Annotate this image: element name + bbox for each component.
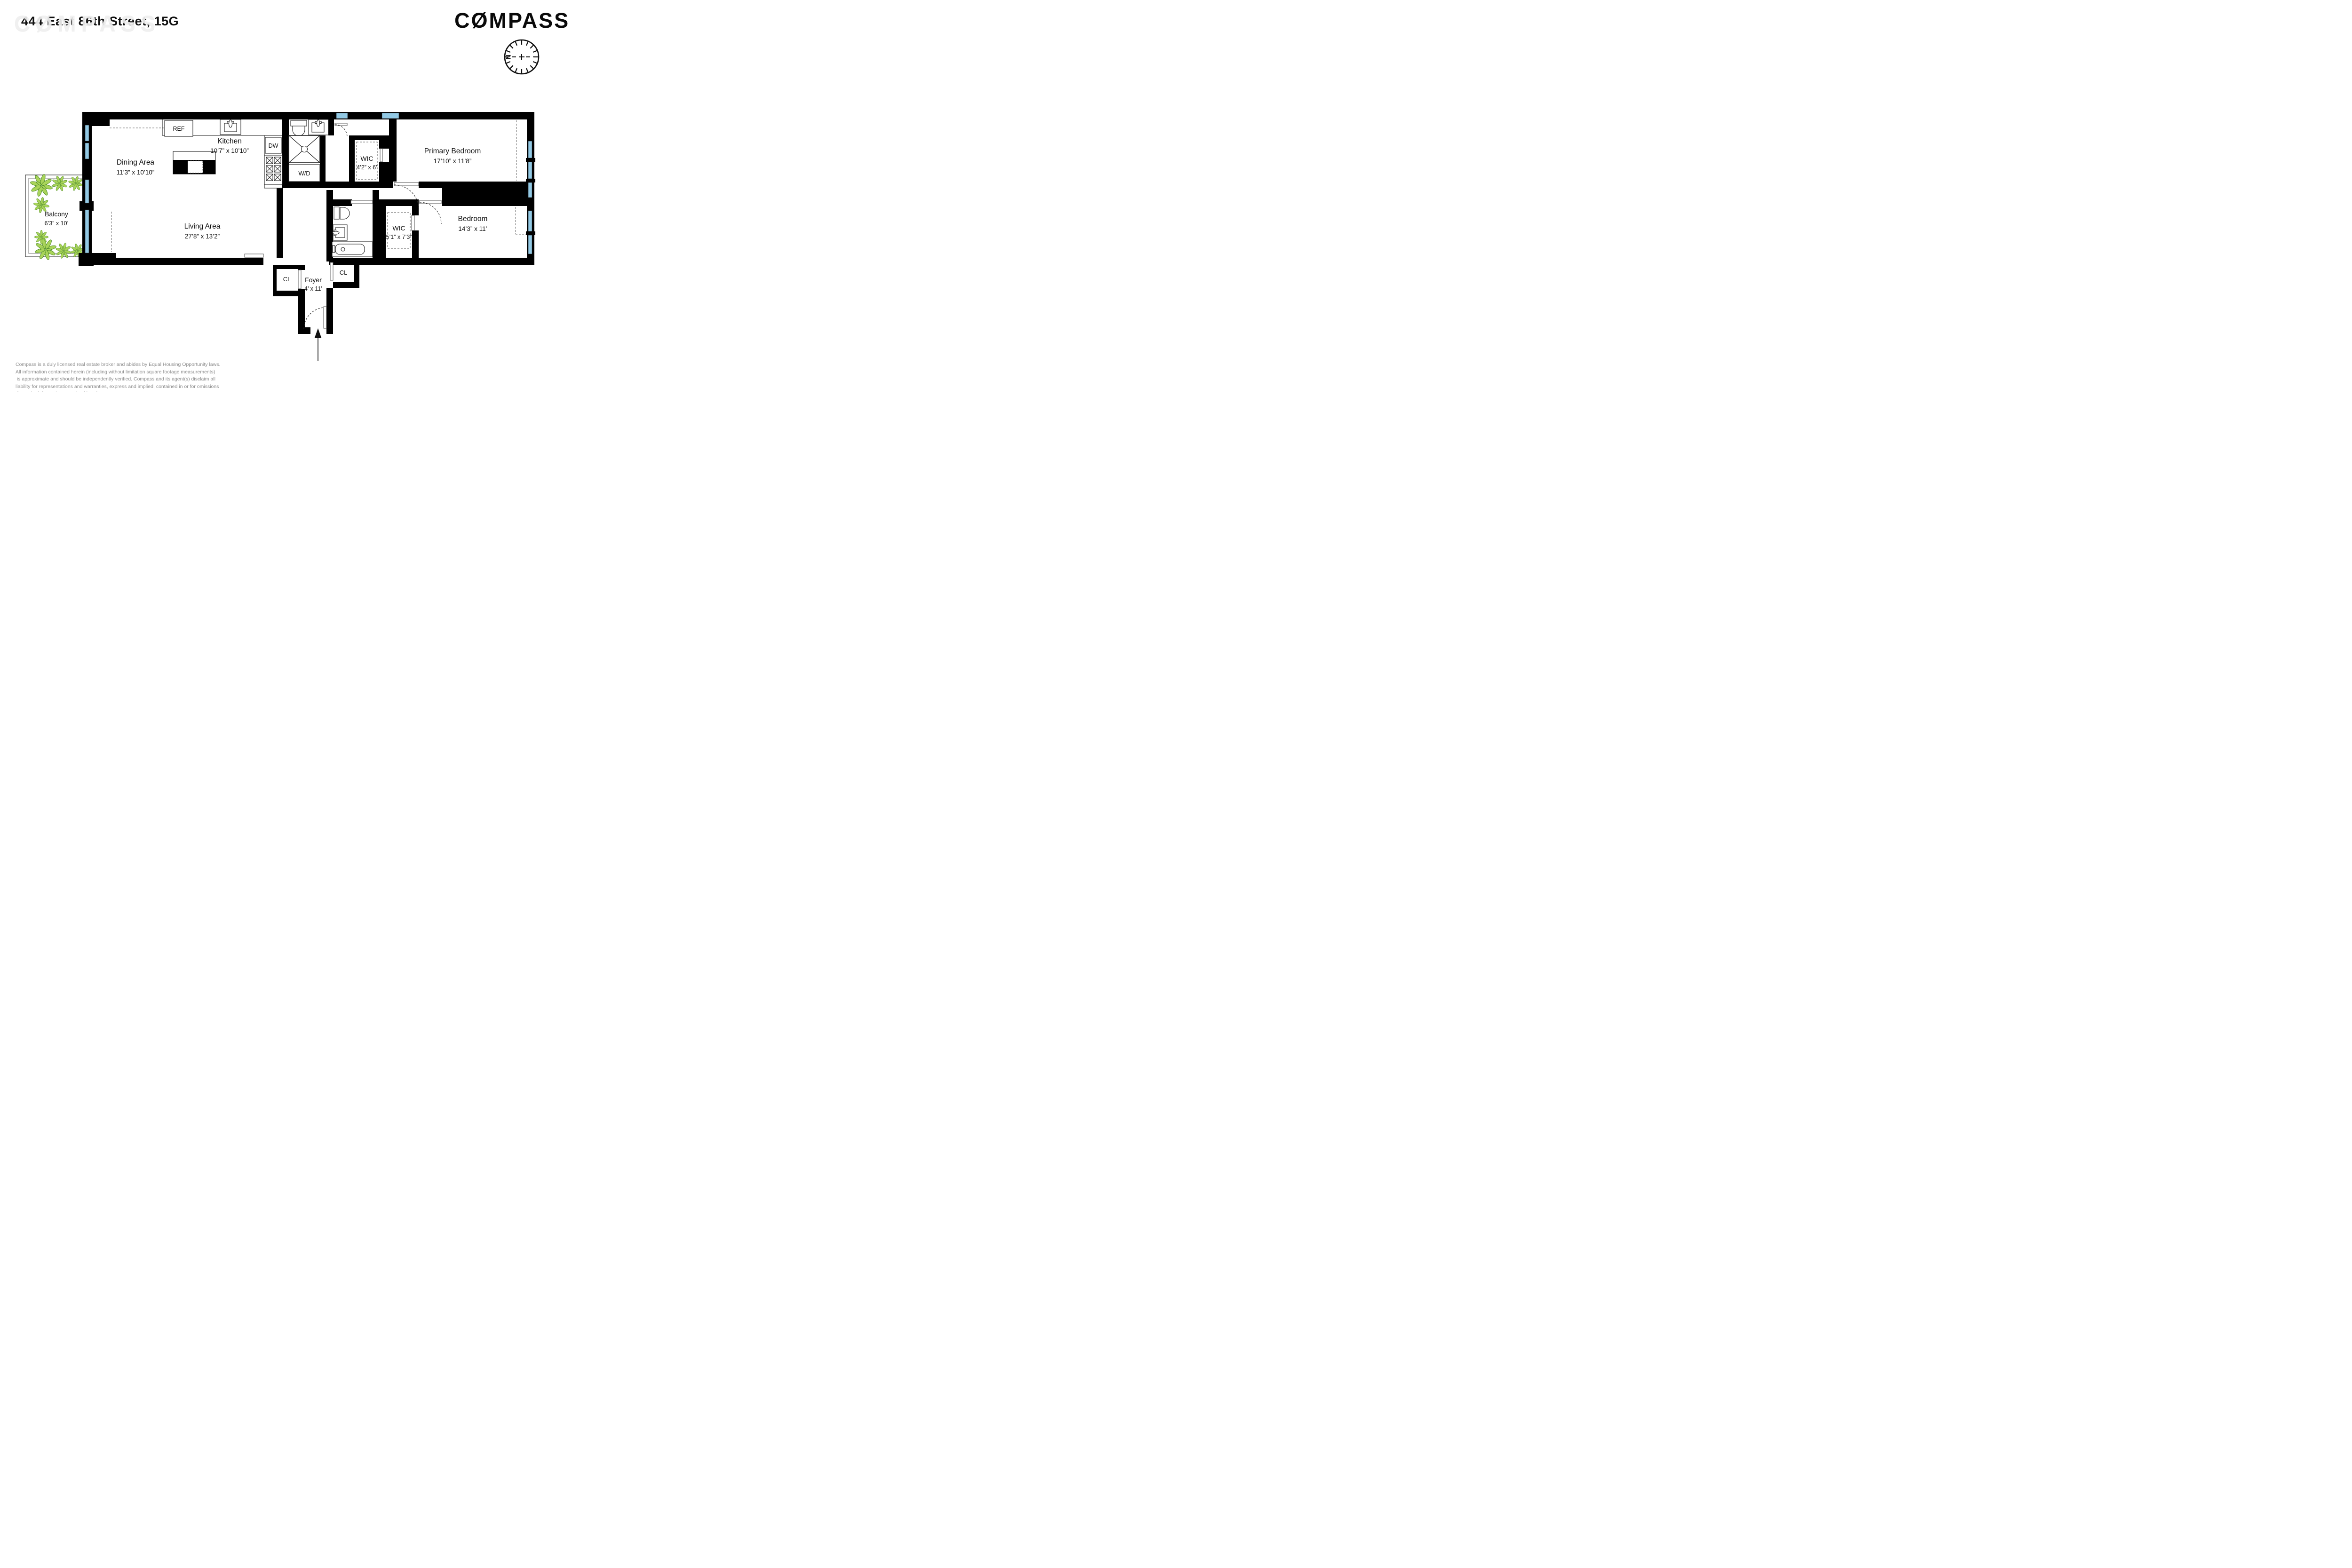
toilet2-bowl [340, 207, 350, 219]
bathtub [332, 242, 373, 257]
room-label-kitchen: Kitchen [217, 137, 242, 145]
disclaimer-line: from, the information contained herein [16, 390, 220, 392]
north-compass-icon: N [501, 37, 542, 77]
disclaimer-line: liability for representations and warran… [16, 383, 220, 391]
floorplan-svg: Dining Area 11’3” x 10’10” Kitchen 10’7”… [0, 0, 588, 392]
door-leaf-bath1 [335, 123, 347, 126]
disclaimer-line: All information contained herein (includ… [16, 369, 220, 376]
floorplan-page: 444 East 86th Street, 15G CØMPASS CØMPAS… [0, 0, 588, 392]
room-dims-kitchen: 10’7” x 10’10” [210, 147, 249, 154]
room-label-foyer: Foyer [305, 276, 322, 284]
plant-icon [27, 171, 55, 199]
room-label-dining: Dining Area [117, 158, 155, 166]
closet-label-left: CL [283, 276, 291, 283]
disclaimer-line: is approximate and should be independent… [16, 376, 220, 383]
room-dims-dining: 11’3” x 10’10” [117, 169, 155, 176]
closet-door-wic2 [412, 215, 414, 230]
room-label-bedroom: Bedroom [458, 215, 488, 223]
room-label-living: Living Area [184, 222, 221, 230]
dishwasher-label: DW [269, 143, 278, 149]
pocket-door-living [245, 254, 263, 257]
compass-watermark: CØMPASS [14, 10, 160, 36]
room-dims-balcony: 6’3” x 10’ [45, 220, 69, 227]
room-dims-living: 27’8” x 13’2” [185, 233, 220, 240]
plant-icon [53, 240, 74, 261]
room-dims-bedroom: 14’3” x 11’ [458, 225, 487, 232]
closet-door-wic1 [380, 149, 382, 162]
door-leaf-bedroom [420, 200, 441, 204]
pocket-door-bath2 [351, 200, 373, 204]
disclaimer: Compass is a duly licensed real estate b… [16, 361, 220, 392]
room-dims-primary: 17’10” x 11’8” [434, 158, 472, 165]
room-dims-wic1: 4’2” x 6’ [357, 164, 377, 171]
room-label-wic1: WIC [360, 155, 373, 162]
room-label-balcony: Balcony [45, 210, 68, 218]
closet-door-cl-right [330, 262, 333, 280]
toilet-tank [291, 120, 307, 126]
toilet2-tank [334, 207, 339, 219]
room-dims-foyer: 4’ x 11’ [304, 285, 322, 292]
north-label: N [505, 55, 512, 59]
room-dims-wic2: 5’1” x 7’3” [386, 234, 412, 240]
washer-dryer-label: W/D [298, 170, 310, 177]
toilet-bowl [293, 126, 305, 136]
closet-door-cl-left [298, 270, 301, 289]
compass-logo: CØMPASS [454, 8, 570, 33]
refrigerator-label: REF [173, 126, 185, 132]
room-label-primary: Primary Bedroom [424, 147, 481, 155]
kitchen-island [173, 151, 215, 174]
bath2-fixtures [332, 207, 373, 257]
entry-arrow [315, 328, 322, 361]
closet-label-right: CL [340, 269, 348, 276]
plant-icon [49, 173, 70, 193]
entry-door-leaf [324, 307, 326, 328]
shower [289, 135, 320, 163]
room-label-wic2: WIC [392, 224, 405, 232]
disclaimer-line: Compass is a duly licensed real estate b… [16, 361, 220, 369]
